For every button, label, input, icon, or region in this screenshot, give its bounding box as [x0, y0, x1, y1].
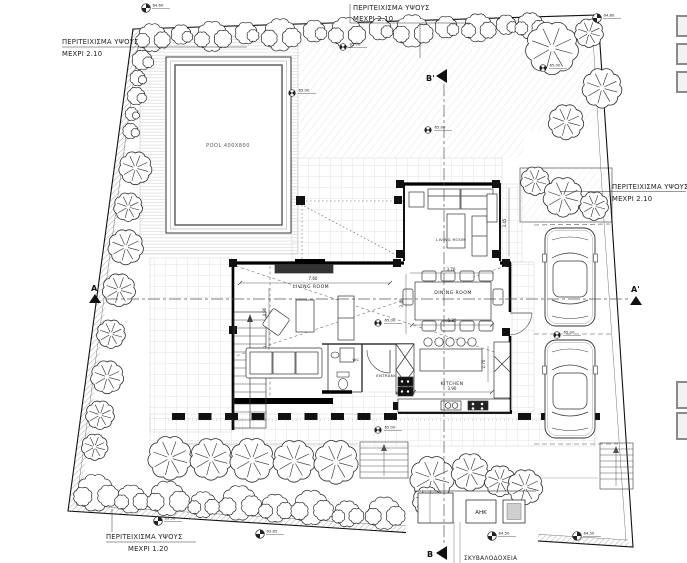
benchmark-value: 64.80 [604, 13, 615, 18]
ahk-label: ΑΗΚ [475, 510, 487, 516]
room-label-living-main: LIVING ROOM [293, 284, 329, 290]
tree-star [91, 361, 124, 394]
dim-kitchen-depth: 2.70 [481, 359, 486, 368]
tree-star [314, 441, 358, 485]
section-a-label: A [91, 284, 98, 293]
pergola-column [199, 413, 212, 420]
car-top-view [543, 228, 598, 326]
pool-label: POOL 400X800 [206, 143, 250, 149]
site-plan-drawing: POOL 400X800 LIVING ROOM [0, 0, 687, 563]
svg-text:ΠΕΡΙΤΕΙΧΙΣΜΑ ΥΨΟΥΣ: ΠΕΡΙΤΕΙΧΙΣΜΑ ΥΨΟΥΣ [612, 183, 687, 191]
pergola-column [278, 413, 291, 420]
car-top-view [543, 340, 598, 438]
tree-star [81, 434, 107, 460]
tree-star [273, 441, 315, 483]
tree-star [148, 437, 192, 481]
tree-bush [188, 492, 220, 518]
garden-stairs [360, 442, 408, 478]
benchmark-survey: 64.60 [142, 3, 170, 13]
tree-star [86, 401, 115, 429]
tree-star [548, 105, 583, 140]
tree-star [102, 274, 135, 307]
svg-text:ΜΕΧΡΙ 1.20: ΜΕΧΡΙ 1.20 [128, 545, 168, 553]
pergola-column [384, 413, 397, 420]
pool: POOL 400X800 [166, 57, 291, 233]
tree-bush [332, 501, 364, 527]
pergola-column [172, 413, 185, 420]
benchmark-value: 65.00 [550, 63, 561, 68]
section-b-label: B [427, 550, 433, 559]
benchmark-survey: 63.85 [256, 529, 284, 539]
tree-star [575, 19, 604, 47]
svg-text:ΜΕΧΡΙ 2.10: ΜΕΧΡΙ 2.10 [612, 195, 652, 203]
tree-star [190, 439, 232, 481]
tree-bush [365, 497, 405, 529]
benchmark-spot: 65.00 [552, 330, 581, 340]
tree-bush [125, 108, 139, 121]
dim-dining-side: 3.40 [399, 298, 404, 307]
benchmark-value: 64.50 [499, 531, 510, 536]
benchmark-value: 64.60 [153, 3, 164, 8]
tree-bush [291, 490, 334, 524]
tree-star [580, 192, 609, 220]
section-a-prime-arrow [630, 296, 642, 305]
pergola-column [518, 413, 531, 420]
pergola-column [305, 413, 318, 420]
benchmark-value: 63.85 [267, 529, 278, 534]
svg-text:ΜΕΧΡΙ 2.10: ΜΕΧΡΙ 2.10 [353, 15, 393, 23]
benchmark-spot: 65.00 [373, 318, 402, 328]
pergola-column [252, 413, 265, 420]
svg-text:ΠΕΡΙΤΕΙΧΙΣΜΑ ΥΨΟΥΣ: ΠΕΡΙΤΕΙΧΙΣΜΑ ΥΨΟΥΣ [62, 38, 139, 46]
site-plan-sheet: POOL 400X800 LIVING ROOM [0, 0, 687, 563]
tree-star [119, 152, 152, 185]
pergola-column [331, 413, 344, 420]
svg-text:ΠΕΡΙΤΕΙΧΙΣΜΑ ΥΨΟΥΣ: ΠΕΡΙΤΕΙΧΙΣΜΑ ΥΨΟΥΣ [353, 4, 430, 12]
benchmark-value: 65.00 [299, 88, 310, 93]
tree-bush [115, 485, 150, 513]
label-bins: ΣΚΥΒΑΛΟΔΟΧΕΙΑ [464, 556, 517, 562]
kitchen-island [420, 338, 482, 371]
room-label-dining: DINING ROOM [434, 290, 471, 296]
benchmark-value: 63.50 [165, 516, 176, 521]
svg-text:ΠΕΡΙΤΕΙΧΙΣΜΑ ΥΨΟΥΣ: ΠΕΡΙΤΕΙΧΙΣΜΑ ΥΨΟΥΣ [106, 533, 183, 541]
room-label-living-upper: LIVING ROOM [436, 237, 466, 242]
section-a-prime-label: A' [631, 285, 640, 294]
entrance-door [367, 350, 390, 373]
tree-bush [259, 494, 294, 522]
svg-text:ΜΕΧΡΙ 2.10: ΜΕΧΡΙ 2.10 [62, 50, 102, 58]
benchmark-value: 65.00 [385, 425, 396, 430]
dim-upper-living-side: 3.45 [502, 218, 507, 227]
tree-bush [147, 481, 190, 515]
section-b-prime-label: B' [426, 74, 435, 83]
pergola-column [358, 413, 371, 420]
dim-dining-width: 5.30 [448, 318, 457, 323]
tree-star [108, 230, 143, 265]
benchmark-value: 64.50 [584, 531, 595, 536]
dim-kitchen-width: 3.90 [448, 386, 457, 391]
room-label-wc: WC [352, 357, 359, 362]
tree-star [582, 69, 622, 108]
benchmark-value: 65.00 [564, 330, 575, 335]
tree-star [543, 178, 583, 217]
tree-bush [219, 486, 262, 520]
tree-star [97, 320, 126, 348]
benchmark-survey: 64.80 [593, 13, 621, 23]
tree-star [507, 470, 542, 505]
pergola-column [225, 413, 238, 420]
dim-upper-living-width: 3.70 [447, 267, 456, 272]
benchmark-value: 65.00 [385, 318, 396, 323]
dim-living-width: 7.60 [309, 276, 318, 281]
tree-star [451, 454, 488, 491]
tree-star [230, 439, 274, 483]
tree-star [114, 193, 143, 221]
living-furniture [246, 265, 354, 378]
neighbor-plots [677, 16, 687, 439]
tree-bush [261, 19, 301, 51]
dim-living-depth: 4.90 [262, 307, 267, 316]
benchmark-value: 65.00 [350, 42, 361, 47]
tree-bush [123, 123, 140, 138]
